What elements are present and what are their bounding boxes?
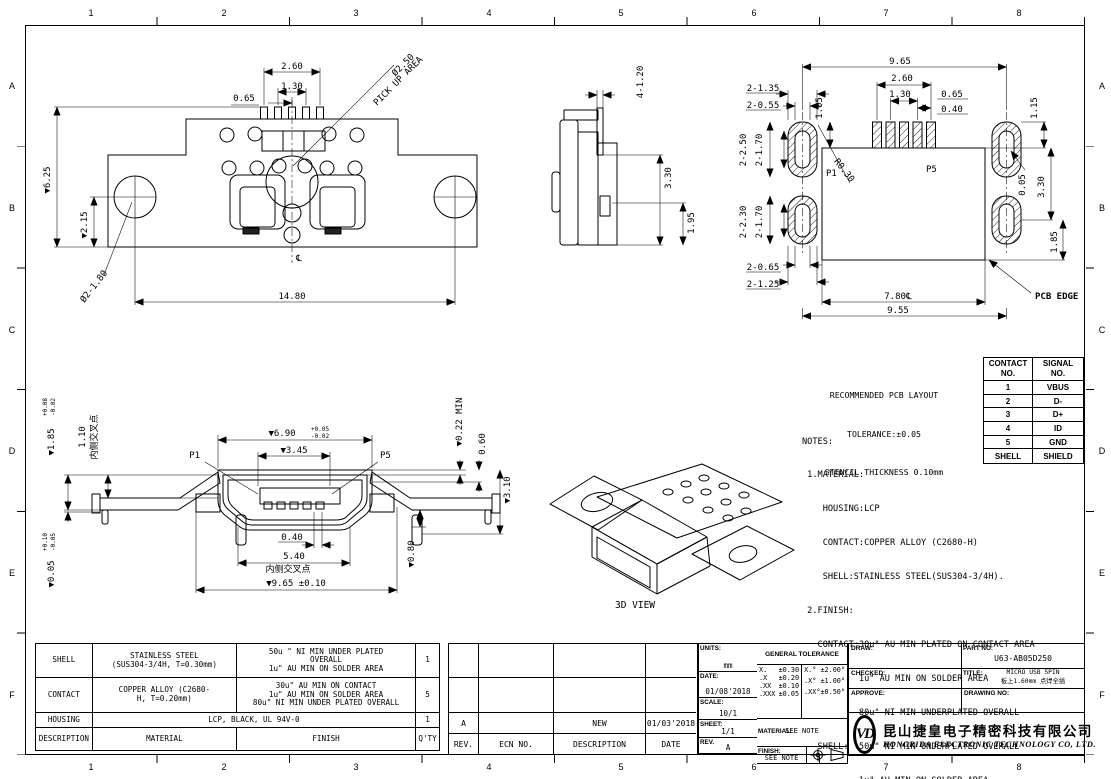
empty-cell [449, 678, 479, 713]
ruler-row: E [1092, 568, 1111, 578]
signal-name: VBUS [1033, 381, 1083, 395]
units-cell: UNITS:mm [699, 644, 757, 672]
header-text: CONTACT [989, 359, 1028, 369]
top-view: 2.60 1.30 0.65 Ø2.50 PICK UP AREA ▼6.25 … [28, 45, 498, 320]
tol-key: .XX° [804, 688, 820, 696]
finish-contact: 30u" AU MIN ON CONTACT 1u" AU MIN ON SOL… [237, 678, 416, 713]
dim-6-90-tol-minus: -0.02 [311, 433, 329, 440]
date-label: DATE: [700, 673, 719, 680]
dim-1-30: 1.30 [889, 90, 911, 100]
qty-contact: 5 [416, 678, 439, 713]
dim-0-22-min: ▼0.22 MIN [455, 398, 465, 447]
dim-2-0-65: 2-0.65 [747, 263, 780, 273]
drawing-sheet: 1 2 3 4 5 6 7 8 1 2 3 4 5 6 7 8 A B C D … [0, 0, 1111, 779]
pin-label-p5: P5 [380, 451, 391, 461]
note-line: HOUSING:LCP [802, 504, 1071, 515]
dim-9-65: 9.65 [889, 57, 911, 67]
ruler-col: 4 [479, 8, 499, 18]
dim-6-25: ▼6.25 [43, 166, 53, 193]
pin-label-p1: P1 [189, 451, 200, 461]
dim-9-55: 9.55 [887, 306, 909, 316]
tol-row: X.±0.30 [759, 666, 799, 674]
dim-3-10: ▼3.10 [503, 476, 513, 503]
qty-shell: 1 [416, 644, 439, 678]
dim-2-1-70: 2-1.70 [755, 134, 765, 167]
revision-entry-row: A NEW 01/03'2018 [449, 713, 697, 734]
dim-1-15: 1.15 [1030, 97, 1040, 119]
header-text: NO. [1001, 369, 1015, 379]
material-note-cell: MATERIAL: SEE NOTE [757, 727, 847, 747]
table-row: 2D- [984, 395, 1083, 409]
title-cell: TITLE: MICRO USB 5PIN 板上1.60mm 点焊全插 [962, 669, 1084, 688]
front-view: ▼6.90 +0.05 -0.02 ▼3.45 P1 P5 ▼1.85 +0.0… [30, 382, 535, 632]
dim-6-90: ▼6.90 [268, 429, 295, 439]
dim-2-2-50: 2-2.50 [739, 134, 749, 167]
ruler-row: D [1092, 446, 1111, 456]
dim-6-90-tol-plus: +0.05 [311, 426, 329, 433]
inner-cross-point-label2: 内侧交叉点 [265, 563, 310, 575]
ruler-col: 7 [876, 8, 896, 18]
dim-2-1-25: 2-1.25 [747, 280, 780, 290]
dim-0-60: 0.60 [478, 433, 488, 455]
rev-value: A [699, 743, 757, 752]
iso-holes [663, 475, 751, 521]
table-row: CONTACT COPPER ALLOY (C2680- H, T=0.20mm… [36, 678, 439, 713]
dim-9-65: ▼9.65 ±0.10 [266, 579, 326, 589]
revision-header-row: REV. ECN NO. DESCRIPTION DATE [449, 734, 697, 754]
ruler-col: 5 [611, 762, 631, 772]
dim-1-85-tol-minus: -0.02 [50, 398, 57, 416]
finish-label: FINISH: [758, 748, 781, 755]
side-view-dims: 4-1.20 3.30 1.95 [636, 66, 697, 234]
iso-outline [550, 464, 794, 594]
ruler-col: 5 [611, 8, 631, 18]
ruler-row: B [1092, 203, 1111, 213]
ruler-row: C [2, 325, 22, 335]
contact-no-header: CONTACTNO. [984, 358, 1033, 381]
dim-0-80: ▼0.80 [407, 540, 417, 567]
dim-0-40: 0.40 [281, 533, 303, 543]
tol-val: ±0.20 [779, 674, 799, 682]
projection-target-icon [810, 748, 826, 762]
tol-val: ±0.05 [779, 690, 799, 698]
rev-value: A [449, 713, 479, 734]
dim-5-40: 5.40 [283, 552, 305, 562]
front-view-dims: ▼6.90 +0.05 -0.02 ▼3.45 P1 P5 ▼1.85 +0.0… [42, 398, 513, 589]
empty-cell [646, 678, 696, 713]
tol-val: ±0.30 [779, 666, 799, 674]
company-row: VD 昆山捷皇电子精密科技有限公司 HONGRIDA ELECTRONIC TE… [849, 713, 1084, 755]
tol-key: .XX [759, 682, 771, 690]
tol-row: .XX±0.10 [759, 682, 799, 690]
dim-2-60: 2.60 [281, 62, 303, 72]
title-line1: MICRO USB 5PIN [982, 669, 1084, 678]
angular-tolerances: X.°±2.00° .X°±1.00° .XX°±0.50° [802, 665, 847, 718]
pcb-layout-view: 9.65 2.60 1.30 0.65 0.40 2-1.35 2-0.55 1… [738, 50, 1088, 322]
dim-1-85: 1.85 [1050, 231, 1060, 253]
dim-14-80: 14.80 [278, 292, 305, 302]
revision-table: A NEW 01/03'2018 REV. ECN NO. DESCRIPTIO… [448, 643, 698, 755]
dim-3-30: 3.30 [1037, 176, 1047, 198]
draw-cell: DRAW: [849, 644, 962, 668]
tol-val: ±0.50° [820, 688, 845, 696]
date-cell: DATE:01/08'2018 [699, 672, 757, 698]
ruler-row: B [2, 203, 22, 213]
ruler-col: 8 [1009, 8, 1029, 18]
title-line2: 板上1.60mm 点焊全插 [982, 678, 1084, 687]
dim-2-60: 2.60 [891, 74, 913, 84]
pcb-dims: 9.65 2.60 1.30 0.65 0.40 2-1.35 2-0.55 1… [739, 57, 1078, 316]
dim-2-0-55: 2-0.55 [747, 101, 780, 111]
pad-label-p1: P1 [826, 169, 837, 179]
table-row: HOUSING LCP, BLACK, UL 94V-0 1 [36, 713, 439, 728]
sheet-value: 1/1 [699, 727, 757, 736]
dim-1-85: ▼1.85 [47, 428, 57, 455]
ruler-col: 1 [81, 8, 101, 18]
note-line: 1u" AU MIN ON SOLDER AREA [802, 776, 1071, 779]
note-line: 2.FINISH: [802, 606, 1071, 617]
table-row [449, 678, 697, 713]
table-row: 1VBUS [984, 381, 1083, 395]
note-line: NOTES: [802, 437, 1071, 448]
ruler-row: F [2, 690, 22, 700]
note-line: CONTACT:COPPER ALLOY (C2680-H) [802, 538, 1071, 549]
empty-cell [646, 644, 696, 678]
dim-1-85-tol-plus: +0.08 [42, 398, 49, 416]
sheet-cell: SHEET:1/1 [699, 720, 757, 738]
dim-hole-2-1-80: Ø2-1.80 [78, 268, 110, 305]
title-block: DRAW: PART NO: U63-AB05D250 CHECKED: TIT… [848, 643, 1085, 756]
ruler-col: 6 [744, 8, 764, 18]
empty-cell [479, 644, 554, 678]
finish-shell: 50u " NI MIN UNDER PLATED OVERALL 1u" AU… [237, 644, 416, 678]
tolerance-header: GENERAL TOLERANCE [757, 644, 847, 665]
title-label: TITLE: [963, 670, 983, 677]
pcb-pads [788, 122, 1021, 244]
tol-val: ±2.00° [820, 666, 845, 674]
rev-date: 01/03'2018 [646, 713, 696, 734]
tol-row: .XXX±0.05 [759, 690, 799, 698]
info-column: UNITS:mm DATE:01/08'2018 SCALE:10/1 SHEE… [698, 643, 757, 754]
empty-cell [479, 678, 554, 713]
rev-description: NEW [554, 713, 646, 734]
rev-cell: REV.A [699, 738, 757, 753]
pad-label-p5: P5 [926, 165, 937, 175]
pcb-caption-line1: RECOMMENDED PCB LAYOUT [800, 389, 968, 402]
dim-7-80: 7.80℄ [884, 292, 912, 302]
dim-2-1-70b: 2-1.70 [755, 206, 765, 239]
units-value: mm [699, 661, 757, 670]
empty-cell [449, 644, 479, 678]
dim-0-65: 0.65 [233, 94, 255, 104]
iso-3d-view [542, 442, 807, 604]
company-name-en: HONGRIDA ELECTRONIC TECHNOLOGY CO, LTD. [883, 740, 1096, 749]
header-finish: FINISH [237, 728, 416, 750]
dim-0-05: 0.05 [1018, 174, 1028, 196]
ruler-col: 3 [346, 8, 366, 18]
header-description: DESCRIPTION [36, 728, 93, 750]
dim-0-05-tol-plus: +0.10 [42, 533, 49, 551]
tol-row: .XX°±0.50° [804, 688, 845, 696]
ruler-ticks-left [17, 25, 25, 755]
ecn-value [479, 713, 554, 734]
pcb-edge-label: PCB EDGE [1035, 292, 1078, 302]
dim-2-2-30: 2-2.30 [739, 206, 749, 239]
material-contact: COPPER ALLOY (C2680- H, T=0.20mm) [93, 678, 237, 713]
dim-1-95: 1.95 [687, 212, 697, 234]
ruler-col: 1 [81, 762, 101, 772]
tol-key: X. [759, 666, 767, 674]
ruler-row: D [2, 446, 22, 456]
empty-cell [554, 678, 646, 713]
ruler-row: A [2, 81, 22, 91]
tol-val: ±1.00° [820, 677, 845, 685]
dim-2-15: ▼2.15 [80, 211, 90, 238]
header-text: NO. [1051, 369, 1065, 379]
header-date: DATE [646, 734, 696, 754]
dim-3-45: ▼3.45 [280, 446, 307, 456]
signal-name: D- [1033, 395, 1083, 409]
scale-label: SCALE: [700, 699, 723, 706]
dim-0-65: 0.65 [941, 90, 963, 100]
inner-cross-point-label: 内侧交叉点 [88, 414, 100, 459]
dim-4-1-20: 4-1.20 [636, 66, 646, 99]
material-shell: STAINLESS STEEL (SUS304-3/4H, T=0.30mm) [93, 644, 237, 678]
general-tolerance-block: GENERAL TOLERANCE X.±0.30 .X±0.20 .XX±0.… [757, 643, 848, 764]
dim-0-40: 0.40 [941, 105, 963, 115]
desc-shell: SHELL [36, 644, 93, 678]
linear-tolerances: X.±0.30 .X±0.20 .XX±0.10 .XXX±0.05 [757, 665, 802, 718]
side-view-outline [552, 108, 617, 245]
drawing-no-cell: DRAWING NO: [962, 689, 1084, 712]
projection-cone-icon [829, 748, 845, 762]
contact-no: 1 [984, 381, 1033, 395]
desc-contact: CONTACT [36, 678, 93, 713]
dim-1-10: 1.10 [78, 426, 88, 448]
table-row: DESCRIPTION MATERIAL FINISH Q'TY [36, 728, 439, 750]
part-no-label: PART NO: [963, 645, 993, 652]
ruler-col: 2 [214, 8, 234, 18]
desc-housing: HOUSING [36, 713, 93, 728]
tol-key: X.° [804, 666, 816, 674]
finish-value: SEE NOTE [757, 754, 806, 762]
checked-cell: CHECKED: [849, 669, 962, 688]
side-view: 4-1.20 3.30 1.95 [540, 60, 715, 275]
tol-val: ±0.10 [779, 682, 799, 690]
tol-key: .XXX [759, 690, 775, 698]
ruler-col: 2 [214, 762, 234, 772]
tol-row: .X±0.20 [759, 674, 799, 682]
material-label: MATERIAL: [758, 728, 792, 735]
header-qty: Q'TY [416, 728, 439, 750]
dim-1-05: 1.05 [815, 97, 825, 119]
company-logo: VD [853, 715, 876, 754]
dim-1-30: 1.30 [281, 82, 303, 92]
note-line: SHELL:STAINLESS STEEL(SUS304-3/4H). [802, 572, 1071, 583]
units-label: UNITS: [700, 645, 721, 652]
signal-no-header: SIGNALNO. [1033, 358, 1083, 381]
ruler-row: E [2, 568, 22, 578]
ruler-row: C [1092, 325, 1111, 335]
scale-value: 10/1 [699, 709, 757, 718]
header-rev: REV. [449, 734, 479, 754]
dim-2-1-35: 2-1.35 [747, 84, 780, 94]
header-text: SIGNAL [1043, 359, 1073, 369]
ruler-row: A [1092, 81, 1111, 91]
ruler-col: 3 [346, 762, 366, 772]
empty-cell [554, 644, 646, 678]
note-line: 1.MATERIAL: [802, 470, 1071, 481]
part-no-value: U63-AB05D250 [962, 654, 1084, 663]
header-ecn: ECN NO. [479, 734, 554, 754]
ruler-row: F [1092, 690, 1111, 700]
projection-symbols [807, 747, 847, 763]
scale-cell: SCALE:10/1 [699, 698, 757, 720]
tol-row: .X°±1.00° [804, 677, 845, 685]
ruler-ticks-top [25, 17, 1085, 25]
dim-0-05-tol-minus: -0.05 [50, 533, 57, 551]
dim-3-30: 3.30 [664, 167, 674, 189]
date-value: 01/08'2018 [699, 687, 757, 696]
table-row: CONTACTNO. SIGNALNO. [984, 358, 1083, 381]
contact-no: 2 [984, 395, 1033, 409]
top-view-outline [108, 100, 477, 263]
view-3d-label: 3D VIEW [585, 600, 685, 611]
header-material: MATERIAL [93, 728, 237, 750]
top-view-dims: 2.60 1.30 0.65 Ø2.50 PICK UP AREA ▼6.25 … [43, 52, 426, 305]
part-no-cell: PART NO: U63-AB05D250 [962, 644, 1084, 668]
table-row [449, 644, 697, 678]
centerline-symbol: ℄ [295, 254, 302, 264]
qty-housing: 1 [416, 713, 439, 728]
tol-key: .X [759, 674, 767, 682]
table-row: SHELL STAINLESS STEEL (SUS304-3/4H, T=0.… [36, 644, 439, 678]
tol-row: X.°±2.00° [804, 666, 845, 674]
company-name-cn: 昆山捷皇电子精密科技有限公司 [883, 720, 1096, 740]
finish-note-cell: FINISH: SEE NOTE [757, 747, 807, 763]
tol-key: .X° [804, 677, 816, 685]
material-housing: LCP, BLACK, UL 94V-0 [93, 713, 416, 728]
ruler-col: 4 [479, 762, 499, 772]
approve-cell: APPROVE: [849, 689, 962, 712]
header-description: DESCRIPTION [554, 734, 646, 754]
dim-0-05: ▼0.05 [47, 560, 57, 587]
material-table: SHELL STAINLESS STEEL (SUS304-3/4H, T=0.… [35, 643, 440, 751]
